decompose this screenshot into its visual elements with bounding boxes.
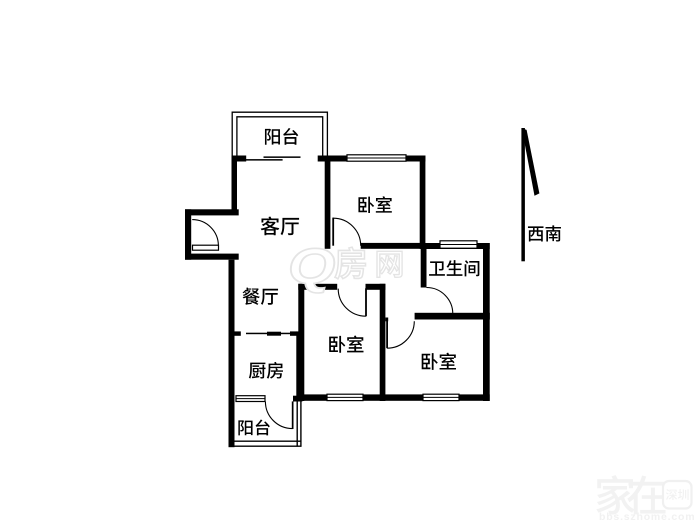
svg-text:bbs.szhome.com: bbs.szhome.com	[599, 511, 695, 523]
svg-text:Q: Q	[288, 238, 335, 294]
